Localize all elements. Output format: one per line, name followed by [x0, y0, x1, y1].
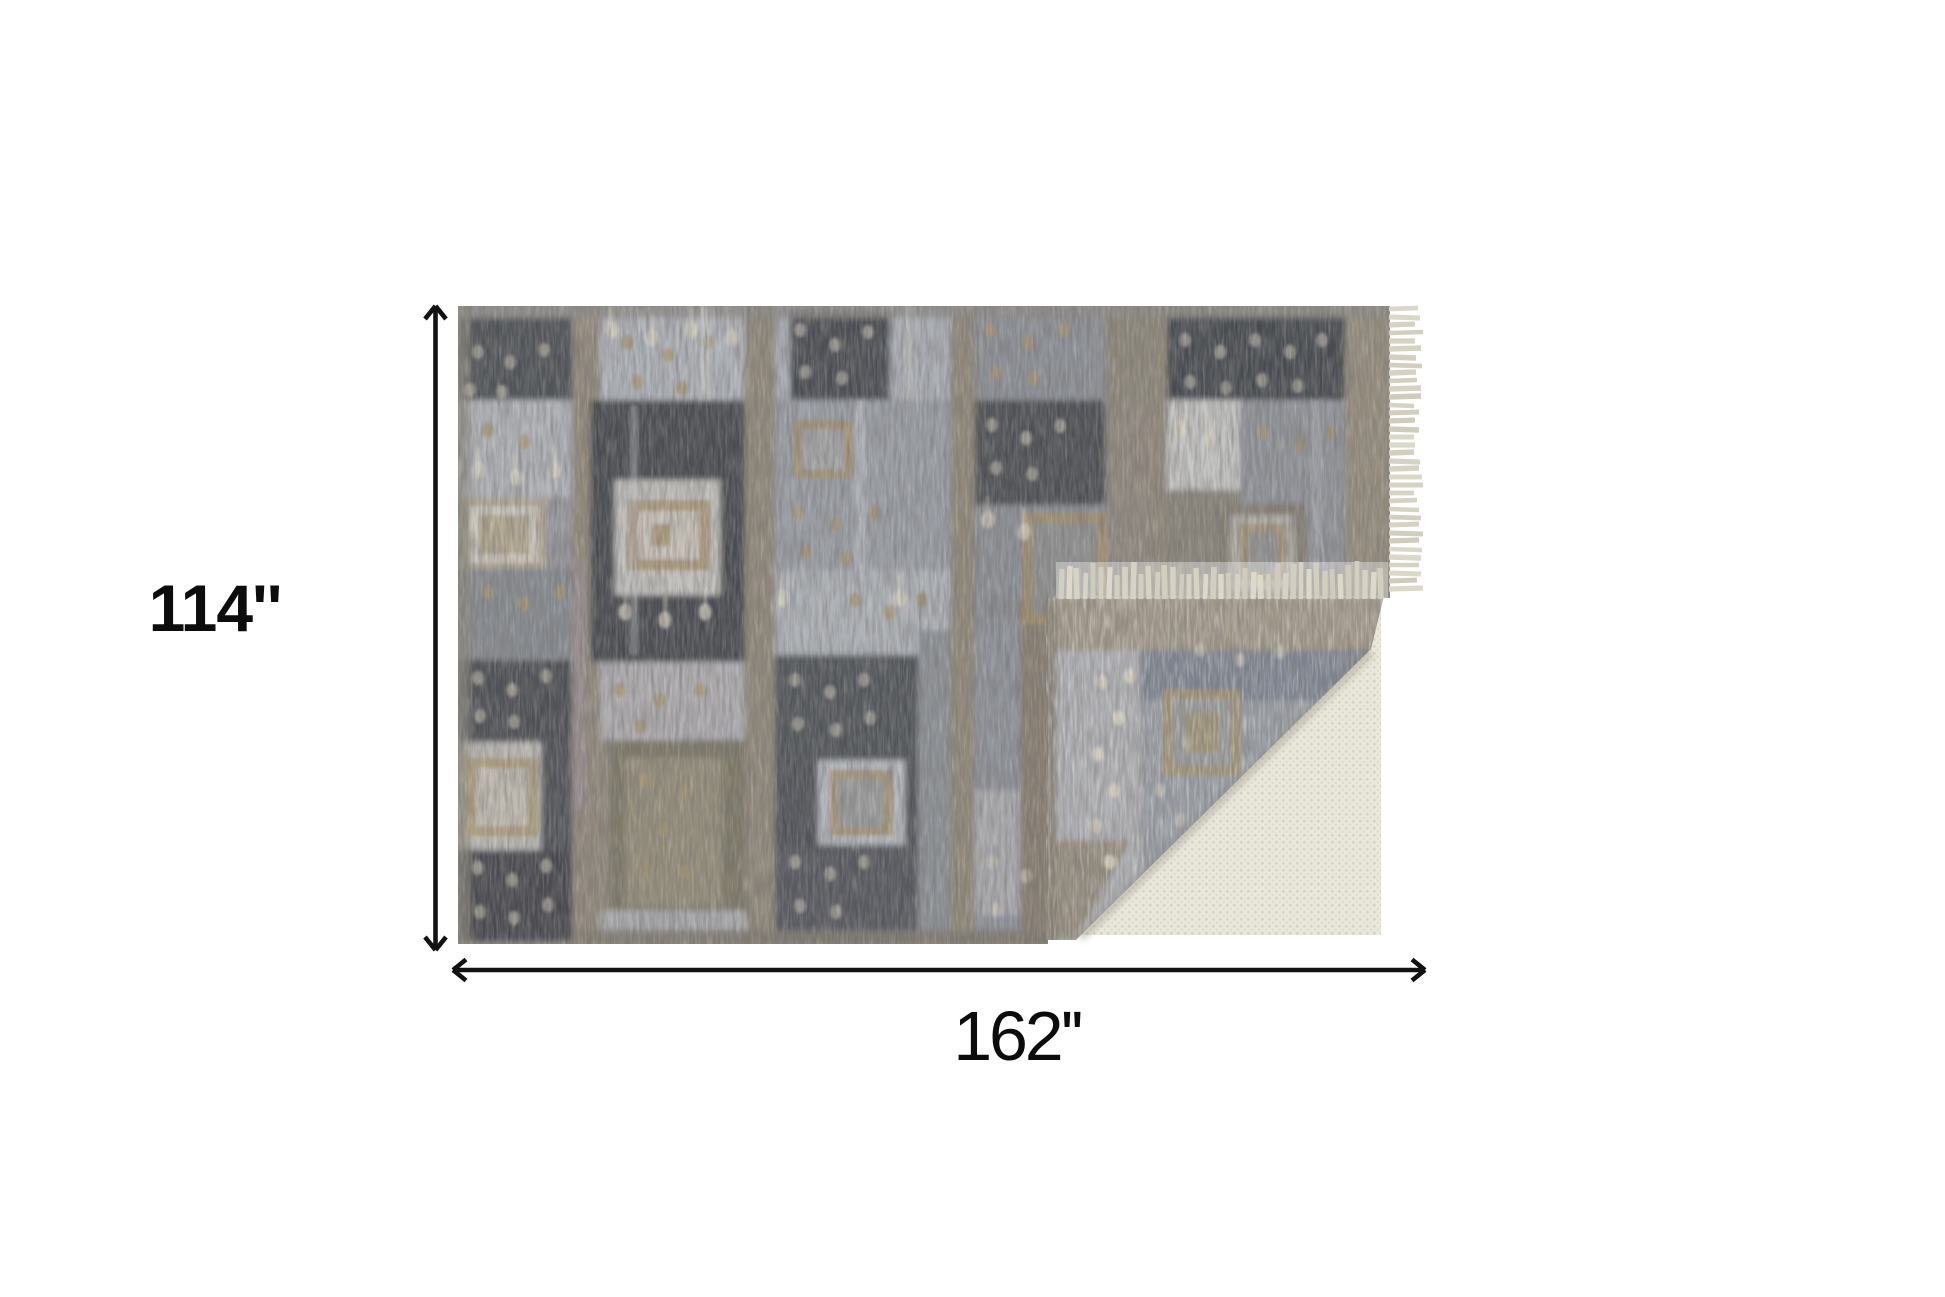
svg-text:114'': 114''	[149, 571, 282, 645]
svg-text:162'': 162''	[953, 997, 1081, 1075]
